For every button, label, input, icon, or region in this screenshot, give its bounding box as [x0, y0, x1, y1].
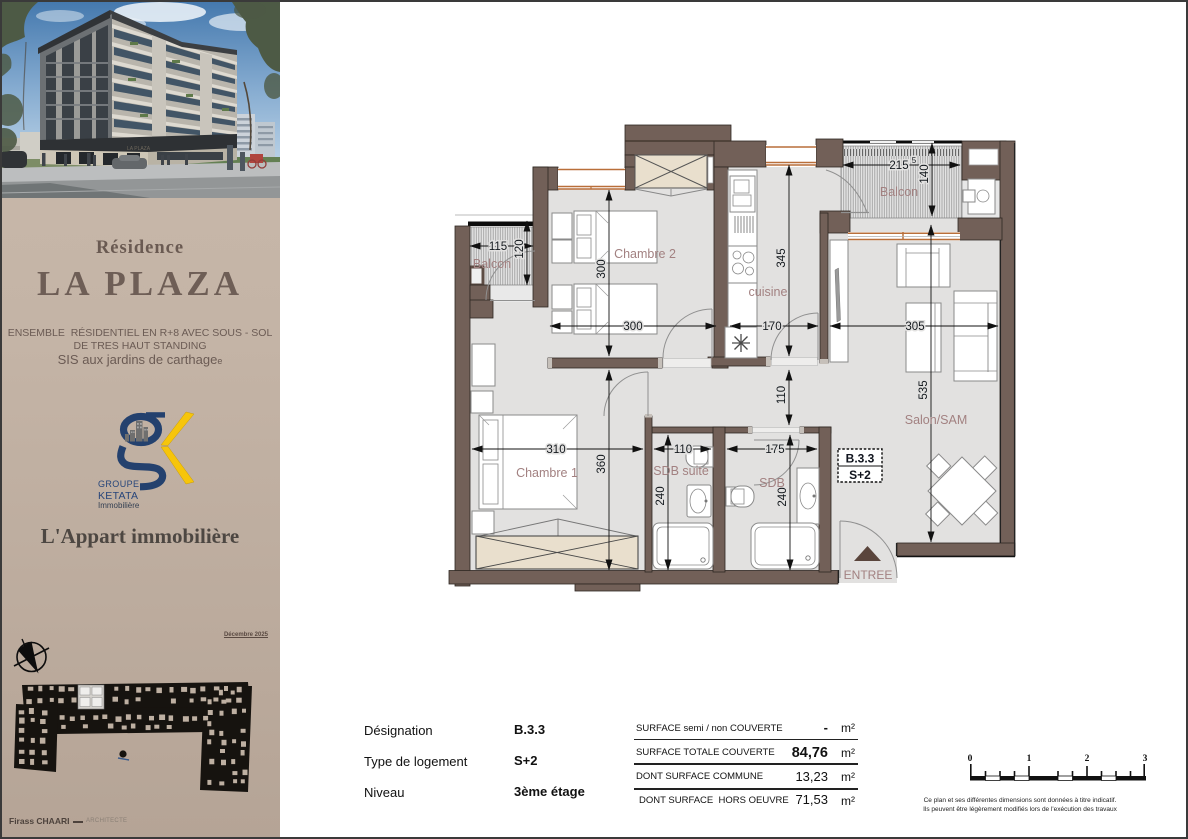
svg-text:2: 2: [1085, 754, 1090, 764]
svg-text:Balcon: Balcon: [473, 257, 511, 271]
svg-text:300: 300: [596, 259, 608, 278]
svg-text:0: 0: [968, 754, 973, 764]
svg-text:170: 170: [762, 321, 781, 333]
svg-text:120: 120: [514, 239, 526, 258]
svg-text:140: 140: [919, 164, 931, 183]
svg-text:Chambre 1: Chambre 1: [516, 466, 578, 480]
svg-text:5: 5: [912, 156, 917, 165]
svg-text:S+2: S+2: [849, 468, 871, 482]
svg-text:Immobilière: Immobilière: [98, 501, 140, 510]
svg-text:1: 1: [1027, 754, 1032, 764]
svg-text:110: 110: [776, 386, 788, 404]
svg-text:240: 240: [655, 486, 667, 505]
svg-text:535: 535: [918, 380, 930, 399]
svg-text:Balcon: Balcon: [880, 185, 918, 199]
svg-text:cuisine: cuisine: [749, 285, 788, 299]
svg-text:360: 360: [596, 454, 608, 473]
svg-text:ENTREE: ENTREE: [844, 568, 893, 582]
svg-text:3: 3: [1143, 754, 1148, 764]
svg-text:215: 215: [889, 160, 908, 172]
svg-text:Salon/SAM: Salon/SAM: [905, 413, 968, 427]
svg-text:175: 175: [765, 444, 784, 456]
svg-text:LA PLAZA: LA PLAZA: [127, 146, 151, 152]
svg-text:Chambre 2: Chambre 2: [614, 247, 676, 261]
svg-text:110: 110: [674, 444, 692, 456]
svg-text:SDB: SDB: [759, 476, 785, 490]
svg-text:115: 115: [489, 241, 507, 253]
svg-text:240: 240: [777, 487, 789, 506]
svg-text:SDB suite: SDB suite: [653, 464, 709, 478]
svg-text:B.3.3: B.3.3: [846, 452, 875, 466]
svg-text:345: 345: [776, 248, 788, 267]
svg-text:310: 310: [546, 444, 565, 456]
svg-text:300: 300: [623, 321, 642, 333]
svg-text:305: 305: [905, 321, 924, 333]
svg-text:GROUPE: GROUPE: [98, 479, 139, 489]
